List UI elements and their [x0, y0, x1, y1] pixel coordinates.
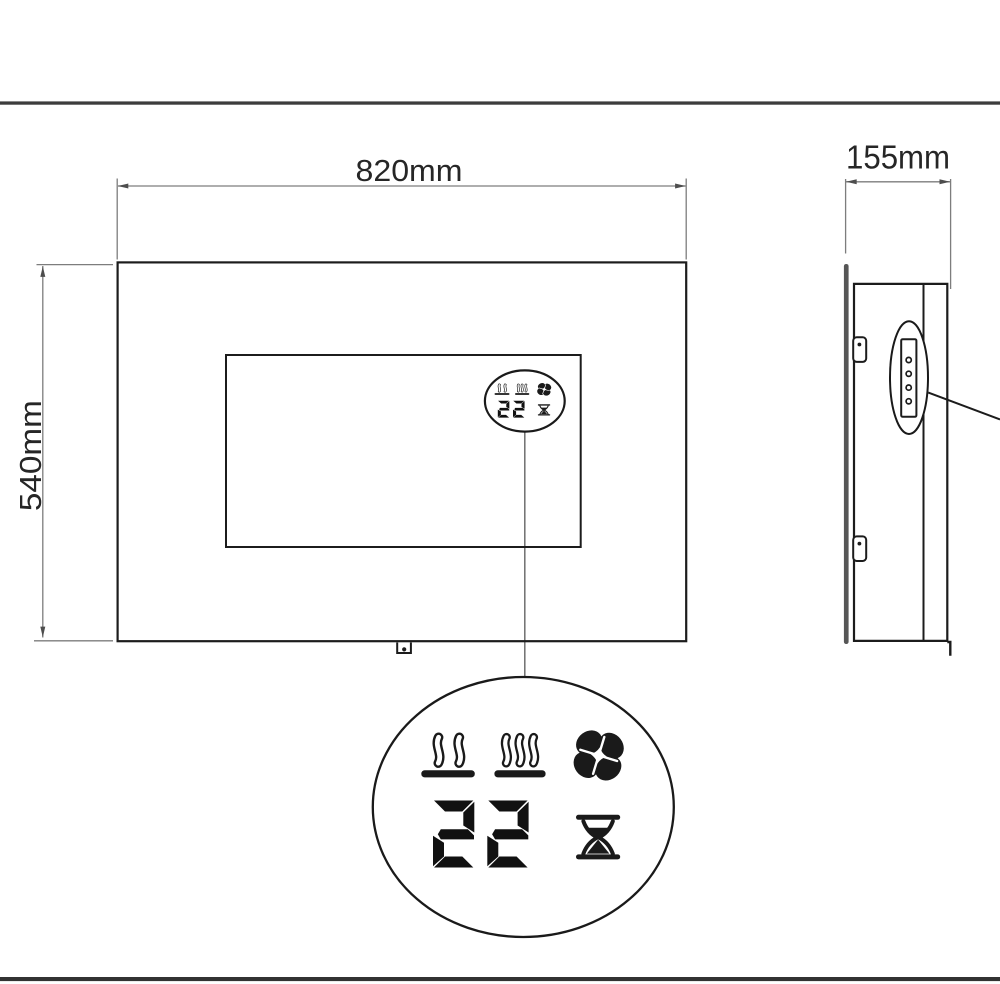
- svg-text:820mm: 820mm: [356, 154, 463, 188]
- svg-text:155mm: 155mm: [846, 140, 950, 177]
- svg-text:540mm: 540mm: [13, 400, 48, 511]
